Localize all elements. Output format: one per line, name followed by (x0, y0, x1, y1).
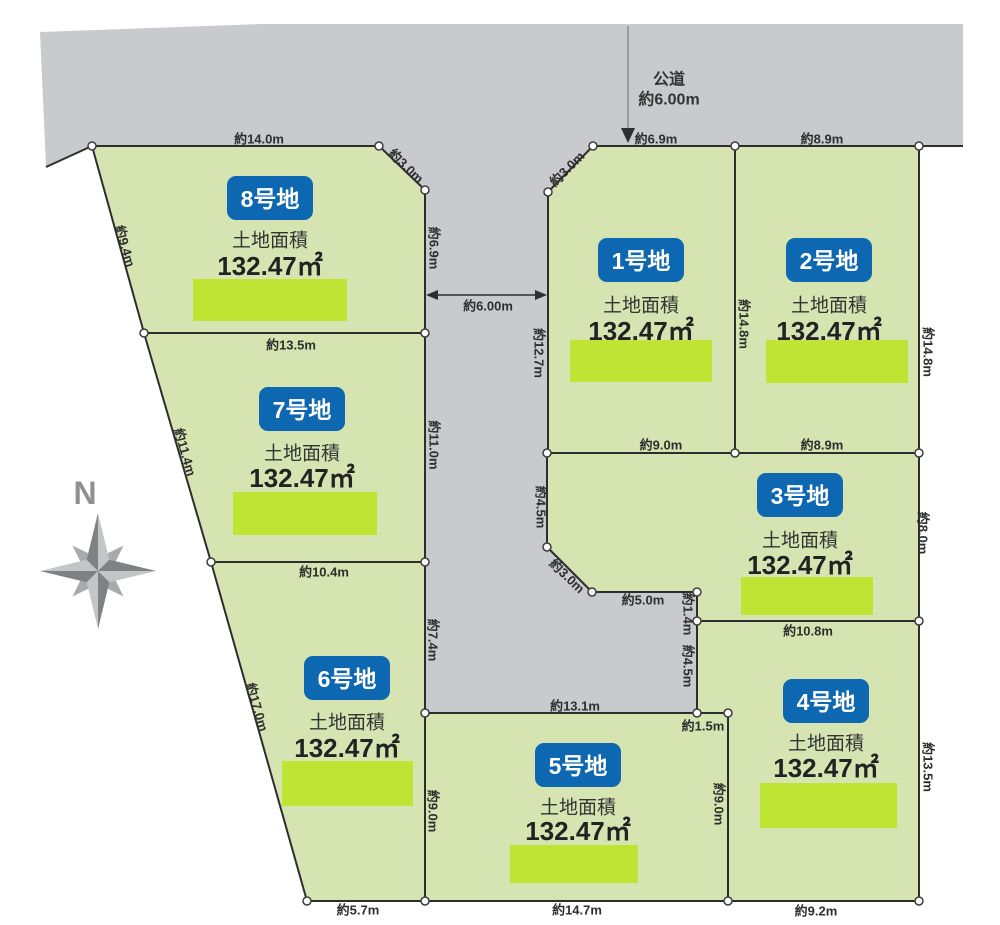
dim-p4-right: 約13.5m (921, 742, 936, 792)
plot-3-area-value: 132.47㎡ (747, 550, 853, 580)
public-road-width: 約6.00m (638, 90, 699, 109)
plot-2-area-title: 土地面積 (791, 295, 867, 317)
plot-3-area-title: 土地面積 (762, 530, 838, 552)
plot-5-area-value: 132.47㎡ (525, 816, 631, 846)
plot-3-name: 3号地 (771, 483, 830, 509)
dim-p7-right: 約11.0m (427, 420, 442, 469)
plan-canvas: N 公道 約6.00m 約6.00m 約14.0m 約3.0m 約9.4m 約6… (0, 0, 1000, 925)
plot-4-name: 4号地 (797, 689, 856, 715)
dim-p1-top: 約6.9m (635, 132, 678, 147)
plot-8-name: 8号地 (241, 186, 300, 212)
plot-2-name: 2号地 (800, 248, 859, 274)
plot-4-area-title: 土地面積 (788, 733, 864, 755)
plot-1-building-bar (570, 340, 712, 382)
dim-p2-bottom: 約8.9m (801, 438, 844, 453)
dim-p3-left: 約4.5m (534, 486, 549, 529)
dim-p3-right: 約8.0m (916, 512, 931, 555)
plot-1-area-title: 土地面積 (603, 295, 679, 317)
land-subdivision-plan: N 公道 約6.00m 約6.00m 約14.0m 約3.0m 約9.4m 約6… (0, 0, 1000, 925)
plot-5-name: 5号地 (549, 753, 608, 779)
dim-p1-left: 約12.7m (532, 328, 547, 378)
plot-7-name: 7号地 (273, 397, 332, 423)
dim-p2-top: 約8.9m (801, 132, 844, 147)
dim-p5-bottom: 約14.7m (552, 903, 602, 918)
plot-6-name: 6号地 (318, 666, 377, 692)
plot-6-area-title: 土地面積 (309, 712, 385, 734)
dim-p6-p7: 約10.4m (299, 565, 349, 580)
plot-2-building-bar (766, 340, 908, 383)
dim-p6-p5: 約9.0m (426, 790, 441, 833)
plot-8-building-bar (193, 279, 347, 321)
plot-4-building-bar (760, 783, 897, 828)
plot-6-area-value: 132.47㎡ (294, 733, 400, 763)
dim-p3-south: 約5.0m (622, 593, 665, 608)
dim-p1-p2: 約14.8m (737, 299, 752, 349)
dim-p8-top: 約14.0m (234, 132, 284, 147)
plot-8-area-value: 132.47㎡ (217, 251, 323, 281)
public-road-name: 公道 (653, 70, 685, 89)
plot-6-building-bar (282, 761, 413, 806)
dim-p3-p4: 約10.8m (783, 624, 833, 639)
plot-7-area-value: 132.47㎡ (249, 463, 355, 493)
plot-7-area-title: 土地面積 (264, 443, 340, 465)
dim-p4-bottom: 約9.2m (795, 904, 838, 919)
dim-p3-jog: 約1.4m (681, 593, 696, 636)
plot-1-name: 1号地 (612, 248, 671, 274)
compass-rose: N (40, 475, 156, 629)
dim-p4-p5-step: 約1.5m (682, 719, 725, 734)
dim-p6-road: 約7.4m (426, 619, 441, 662)
plot-5-building-bar (510, 845, 638, 883)
dim-p8-right: 約6.9m (427, 227, 442, 270)
dim-p1-bottom: 約9.0m (640, 438, 683, 453)
plot-8-area-title: 土地面積 (232, 230, 308, 252)
dim-road-cross-width: 約6.00m (463, 299, 513, 314)
plot-7-building-bar (233, 492, 377, 535)
dim-p6-bottom: 約5.7m (337, 903, 380, 918)
compass-north-label: N (73, 475, 96, 511)
dim-p2-right: 約14.8m (921, 327, 936, 377)
dim-p5-top: 約13.1m (550, 699, 600, 714)
dim-p7-p8: 約13.5m (266, 338, 316, 353)
plot-3-building-bar (741, 577, 873, 615)
dim-p4-notch: 約4.5m (681, 645, 696, 688)
dim-p5-p4: 約9.0m (712, 783, 727, 826)
plot-4-area-value: 132.47㎡ (773, 753, 879, 783)
